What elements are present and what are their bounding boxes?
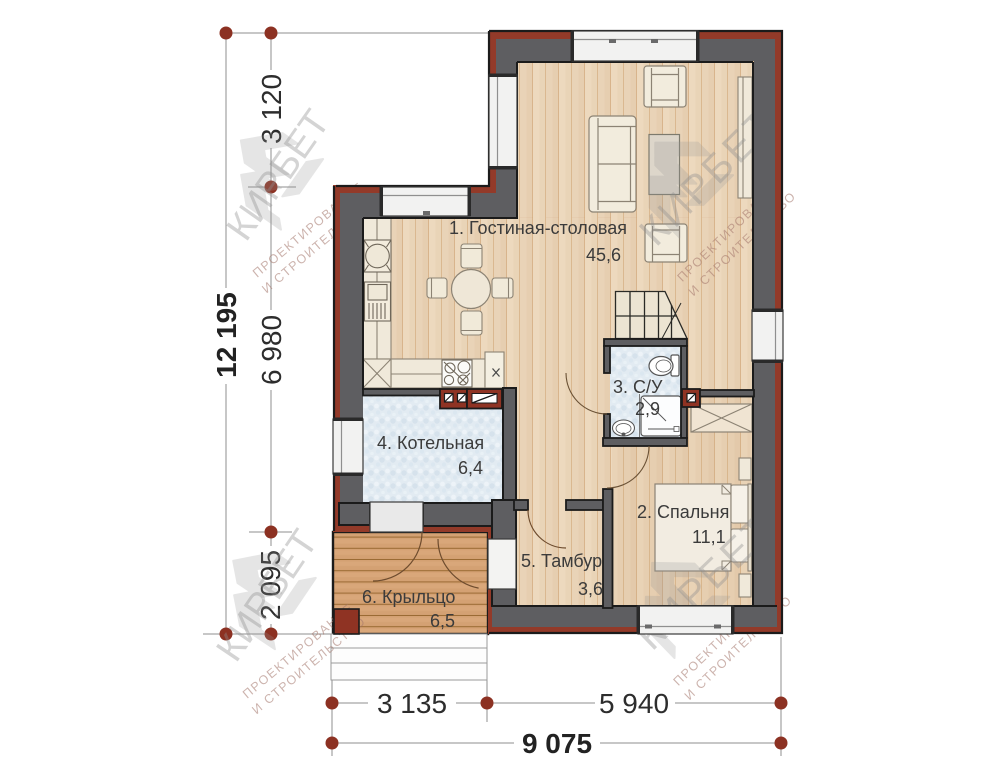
svg-text:9 075: 9 075 bbox=[522, 728, 592, 759]
svg-text:3,6: 3,6 bbox=[578, 579, 603, 599]
svg-text:6,4: 6,4 bbox=[458, 458, 483, 478]
svg-text:2. Спальня: 2. Спальня bbox=[637, 502, 729, 522]
svg-text:5. Тамбур: 5. Тамбур bbox=[521, 551, 602, 571]
svg-text:5 940: 5 940 bbox=[599, 688, 669, 719]
svg-text:4. Котельная: 4. Котельная bbox=[377, 433, 484, 453]
svg-text:6. Крыльцо: 6. Крыльцо bbox=[362, 587, 455, 607]
svg-text:1. Гостиная-столовая: 1. Гостиная-столовая bbox=[449, 218, 627, 238]
svg-text:12 195: 12 195 bbox=[211, 292, 242, 378]
svg-text:6 980: 6 980 bbox=[256, 315, 287, 385]
svg-text:3 135: 3 135 bbox=[377, 688, 447, 719]
svg-text:2,9: 2,9 bbox=[635, 399, 660, 419]
svg-text:45,6: 45,6 bbox=[586, 245, 621, 265]
svg-text:6,5: 6,5 bbox=[430, 611, 455, 631]
svg-text:3. С/У: 3. С/У bbox=[613, 377, 663, 397]
svg-text:11,1: 11,1 bbox=[692, 527, 726, 547]
